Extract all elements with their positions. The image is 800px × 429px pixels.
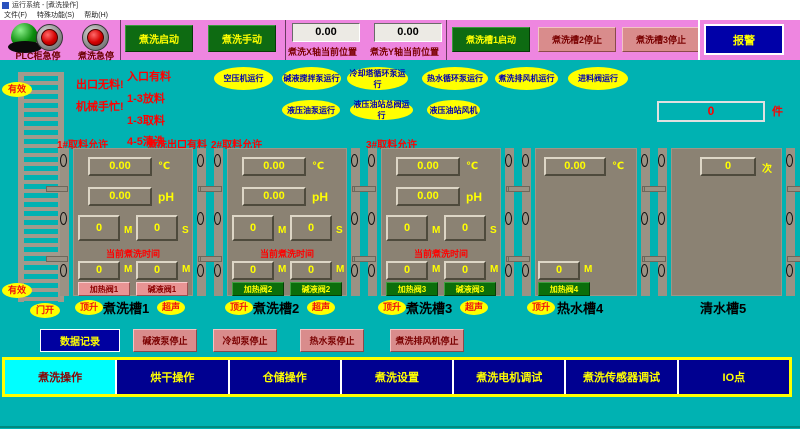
tank1-current-min-display: 0 [78, 261, 120, 280]
tank-rail [641, 148, 650, 296]
divider [285, 20, 286, 60]
divider [120, 20, 121, 60]
wash-estop-button[interactable] [82, 24, 109, 51]
menu-bar: 文件(F) 特殊功能(S) 帮助(H) [0, 10, 800, 20]
tank4-heat-valve-button[interactable]: 加热阀4 [538, 282, 590, 296]
tank2-stop-button[interactable]: 煮洗槽2停止 [538, 27, 616, 52]
door-open-badge: 门开 [30, 303, 60, 318]
tank3-name: 煮洗槽3 [406, 298, 452, 317]
minutes-unit: M [336, 264, 344, 275]
step-text-3: 1-3取料 [127, 112, 165, 128]
tank3-alkali-valve-button[interactable]: 碱液阀3 [444, 282, 496, 296]
tank-4: 0.00 ℃ 0 M 加热阀4 [522, 148, 650, 296]
wash-start-button[interactable]: 煮洗启动 [125, 25, 193, 52]
tank4-temp-unit: ℃ [612, 161, 624, 172]
tank1-set-minutes-display: 0 [78, 215, 120, 241]
hot-water-pump-indicator: 热水循环泵运行 [422, 67, 488, 90]
tank5-count-unit: 次 [762, 160, 772, 175]
tank3-set-minutes-display: 0 [386, 215, 428, 241]
tank3-lift-badge: 顶升 [378, 300, 406, 315]
tank2-temp-unit: ℃ [312, 161, 324, 172]
seconds-unit: S [490, 225, 497, 236]
exhaust-fan-stop-button[interactable]: 煮洗排风机停止 [390, 329, 464, 352]
hydraulic-fan-indicator: 液压油站风机 [427, 100, 480, 120]
cooling-tower-pump-indicator: 冷却塔循环泵运行 [347, 67, 408, 90]
tank1-temp-unit: ℃ [158, 161, 170, 172]
tank-rail [197, 148, 206, 296]
tank4-temp-display: 0.00 [544, 157, 606, 176]
minutes-unit: M [124, 264, 132, 275]
tank1-start-button[interactable]: 煮洗槽1启动 [452, 27, 530, 52]
tank3-stop-button[interactable]: 煮洗槽3停止 [622, 27, 700, 52]
minutes-unit: M [278, 264, 286, 275]
tank3-set-seconds-display: 0 [444, 215, 486, 241]
tab-wash-settings[interactable]: 煮洗设置 [342, 360, 454, 394]
divider [446, 20, 447, 60]
tank4-lift-badge: 顶升 [527, 300, 555, 315]
tank2-ultrasonic-badge: 超声 [307, 300, 335, 315]
y-position-display: 0.00 [374, 23, 442, 42]
tab-wash-sensor-debug[interactable]: 煮洗传感器调试 [566, 360, 678, 394]
wash-manual-button[interactable]: 煮洗手动 [208, 25, 276, 52]
tank4-current-min-display: 0 [538, 261, 580, 280]
top-control-bar: PLC柜急停 煮洗急停 煮洗启动 煮洗手动 0.00 0.00 煮洗X轴当前位置… [0, 20, 800, 60]
tank3-current-time-label: 当前煮洗时间 [382, 247, 500, 260]
tank-rail [368, 148, 377, 296]
tank1-temp-display: 0.00 [88, 157, 152, 176]
tank3-current-min-display: 0 [386, 261, 428, 280]
minutes-unit: M [490, 264, 498, 275]
seconds-unit: S [336, 225, 343, 236]
menu-help[interactable]: 帮助(H) [84, 10, 108, 20]
tank3-current-sec-display: 0 [444, 261, 486, 280]
tank1-ph-display: 0.00 [88, 187, 152, 206]
menu-special-functions[interactable]: 特殊功能(S) [37, 10, 74, 20]
tab-wash-operation[interactable]: 煮洗操作 [5, 360, 117, 394]
tank1-heat-valve-button[interactable]: 加热阀1 [78, 282, 130, 296]
hydraulic-main-valve-indicator: 液压油站总阀运行 [350, 100, 413, 120]
minutes-unit: M [182, 264, 190, 275]
tank1-ph-unit: pH [158, 190, 174, 204]
tank-rail [522, 148, 531, 296]
seconds-unit: S [182, 225, 189, 236]
tank2-ph-unit: pH [312, 190, 328, 204]
bottom-tab-bar: 煮洗操作 烘干操作 仓储操作 煮洗设置 煮洗电机调试 煮洗传感器调试 IO点 [2, 357, 792, 397]
tank2-ph-display: 0.00 [242, 187, 306, 206]
exit-empty-text: 出口无料! [76, 76, 124, 92]
plc-estop-label: PLC柜急停 [6, 49, 70, 62]
tank1-name: 煮洗槽1 [103, 298, 149, 317]
tank5-count-display: 0 [700, 157, 756, 176]
valid-badge-bottom: 有效 [2, 283, 32, 298]
tank-rail [60, 148, 69, 296]
data-log-button[interactable]: 数据记录 [40, 329, 120, 352]
tab-storage-operation[interactable]: 仓储操作 [230, 360, 342, 394]
tank2-set-minutes-display: 0 [232, 215, 274, 241]
tank-rail [505, 148, 514, 296]
exhaust-fan-indicator: 煮洗排风机运行 [495, 67, 558, 90]
tank3-temp-unit: ℃ [466, 161, 478, 172]
tank3-ph-display: 0.00 [396, 187, 460, 206]
step-text-1: 入口有料 [127, 68, 171, 84]
tank4-name: 热水槽4 [557, 298, 603, 317]
tank5-name: 清水槽5 [700, 298, 746, 317]
tank3-heat-valve-button[interactable]: 加热阀3 [386, 282, 438, 296]
alkali-mixer-pump-indicator: 碱液搅拌泵运行 [282, 67, 341, 90]
piece-counter-display: 0 [657, 101, 765, 122]
tank-rail [214, 148, 223, 296]
x-position-label: 煮洗X轴当前位置 [288, 45, 357, 58]
wash-estop-label: 煮洗急停 [72, 49, 120, 62]
minutes-unit: M [124, 225, 132, 236]
tank2-current-sec-display: 0 [290, 261, 332, 280]
tank2-body: 0.00 ℃ 0.00 pH 0 M 0 S 当前煮洗时间 0 M 0 M 加热… [227, 148, 347, 296]
tank1-current-sec-display: 0 [136, 261, 178, 280]
tank1-body: 0.00 ℃ 0.00 pH 0 M 0 S 当前煮洗时间 0 M 0 M 加热… [73, 148, 193, 296]
tank-3: 0.00 ℃ 0.00 pH 0 M 0 S 当前煮洗时间 0 M 0 M 加热… [368, 148, 514, 296]
tank4-body: 0.00 ℃ 0 M 加热阀4 [535, 148, 637, 296]
tank-rail [658, 148, 667, 296]
tank1-current-time-label: 当前煮洗时间 [74, 247, 192, 260]
feed-valve-indicator: 进料阀运行 [568, 67, 628, 90]
cooling-pump-stop-button[interactable]: 冷却泵停止 [213, 329, 277, 352]
tank1-ultrasonic-badge: 超声 [157, 300, 185, 315]
hydraulic-pump-indicator: 液压油泵运行 [282, 100, 340, 120]
tank-1: 0.00 ℃ 0.00 pH 0 M 0 S 当前煮洗时间 0 M 0 M 加热… [60, 148, 206, 296]
minutes-unit: M [432, 264, 440, 275]
tank3-body: 0.00 ℃ 0.00 pH 0 M 0 S 当前煮洗时间 0 M 0 M 加热… [381, 148, 501, 296]
minutes-unit: M [432, 225, 440, 236]
plc-estop-button[interactable] [36, 24, 63, 51]
tank2-current-min-display: 0 [232, 261, 274, 280]
tank1-alkali-valve-button[interactable]: 碱液阀1 [136, 282, 188, 296]
tank-rail [786, 148, 795, 296]
tank3-ph-unit: pH [466, 190, 482, 204]
hot-water-pump-stop-button[interactable]: 热水泵停止 [300, 329, 364, 352]
tab-wash-motor-debug[interactable]: 煮洗电机调试 [454, 360, 566, 394]
tank1-set-seconds-display: 0 [136, 215, 178, 241]
tank2-lift-badge: 顶升 [225, 300, 253, 315]
tab-dry-operation[interactable]: 烘干操作 [117, 360, 229, 394]
tank-2: 0.00 ℃ 0.00 pH 0 M 0 S 当前煮洗时间 0 M 0 M 加热… [214, 148, 360, 296]
menu-file[interactable]: 文件(F) [4, 10, 27, 20]
tank2-temp-display: 0.00 [242, 157, 306, 176]
alkali-pump-stop-button[interactable]: 碱液泵停止 [133, 329, 197, 352]
air-compressor-indicator: 空压机运行 [214, 67, 273, 90]
piece-counter-unit: 件 [772, 103, 783, 119]
minutes-unit: M [584, 264, 592, 275]
window-titlebar: 运行系统 - [煮洗操作] [0, 0, 800, 10]
alarm-button[interactable]: 报警 [704, 24, 784, 55]
step-text-2: 1-3放料 [127, 90, 165, 106]
minutes-unit: M [278, 225, 286, 236]
y-position-label: 煮洗Y轴当前位置 [370, 45, 439, 58]
x-position-display: 0.00 [292, 23, 360, 42]
tank2-heat-valve-button[interactable]: 加热阀2 [232, 282, 284, 296]
window-title: 运行系统 - [煮洗操作] [12, 0, 78, 10]
tank5-body: 0 次 [671, 148, 782, 296]
tank-rail [351, 148, 360, 296]
tank3-temp-display: 0.00 [396, 157, 460, 176]
tank2-name: 煮洗槽2 [253, 298, 299, 317]
tank-5: 0 次 [658, 148, 795, 296]
tank2-set-seconds-display: 0 [290, 215, 332, 241]
tank2-current-time-label: 当前煮洗时间 [228, 247, 346, 260]
app-icon [2, 2, 9, 9]
tab-io-points[interactable]: IO点 [679, 360, 789, 394]
tank2-alkali-valve-button[interactable]: 碱液阀2 [290, 282, 342, 296]
window-bottom-edge [0, 426, 800, 428]
divider [698, 20, 700, 60]
robot-busy-text: 机械手忙! [76, 98, 124, 114]
tank3-ultrasonic-badge: 超声 [460, 300, 488, 315]
tank1-lift-badge: 顶升 [75, 300, 103, 315]
valid-badge-top: 有效 [2, 82, 32, 97]
hmi-screen: 运行系统 - [煮洗操作] 文件(F) 特殊功能(S) 帮助(H) PLC柜急停… [0, 0, 800, 429]
